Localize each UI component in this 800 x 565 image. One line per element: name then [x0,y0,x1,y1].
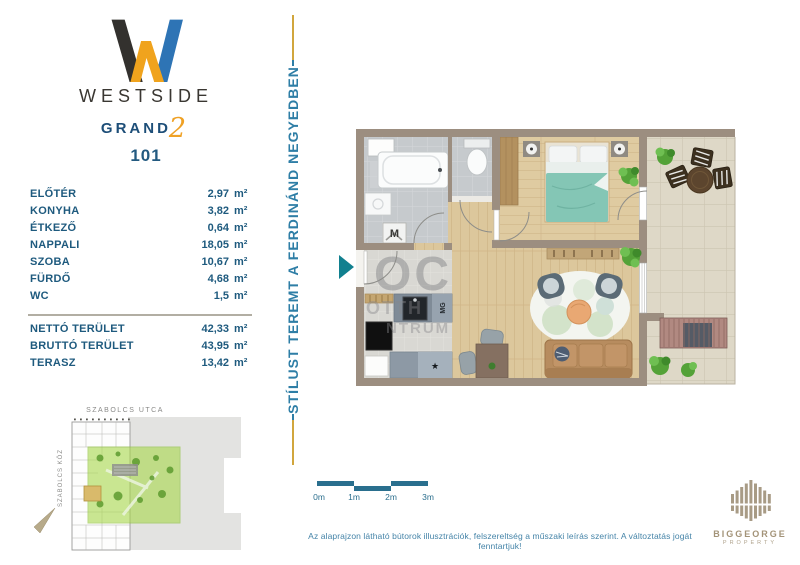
developer-subtitle: PROPERTY [698,540,800,546]
room-label: TERASZ [30,357,195,369]
brand-logo: WESTSIDE GRAND2 101 [30,18,262,166]
double-bed [545,142,609,222]
totals-rows: NETTÓ TERÜLET42,33m²BRUTTÓ TERÜLET43,95m… [30,323,254,374]
terrace-stool-right [712,167,732,190]
sitemap-courtyard [88,447,180,523]
brand-line2: GRAND2 [30,109,262,140]
floor-plan: M [336,116,736,388]
room-value: 1,5 [195,290,229,302]
room-rows: ELŐTÉR2,97m²KONYHA3,82m²ÉTKEZŐ0,64m²NAPP… [30,188,254,307]
brand-grand-label: GRAND [101,120,171,137]
westside-w-logo-icon [104,18,188,82]
room-unit: m² [234,222,254,234]
room-row: NAPPALI18,05m² [30,239,254,256]
room-row: BRUTTÓ TERÜLET43,95m² [30,340,254,357]
room-unit: m² [234,357,254,369]
fridge-star-label: ★ [431,361,439,371]
site-map-drawing: SZABOLCS UTCA SZABOLCS KÖZ [28,400,248,558]
living-window [640,263,647,313]
scale-tick-0: 0m [313,492,325,502]
terrace-bench [660,318,727,348]
compass-needle-icon [34,508,55,533]
room-unit: m² [234,273,254,285]
room-row: ELŐTÉR2,97m² [30,188,254,205]
developer-logo: BIGGEORGE PROPERTY [698,480,800,546]
dining-chair-left [458,351,478,375]
tv-console [547,248,619,259]
watermark-line1: OC [374,248,452,301]
kitchen-counter-bottom: ★ [390,352,452,378]
room-row: WC1,5m² [30,290,254,307]
terrace-stool-top [691,147,714,167]
unit-number: 101 [30,146,262,166]
scale-tick-3: 3m [422,492,434,502]
room-value: 2,97 [195,188,229,200]
room-unit: m² [234,239,254,251]
watermark-line3: NTRUM [386,320,450,337]
dishwasher-label: MG [440,302,447,314]
disclaimer-text: Az alaprajzon látható bútorok illusztrác… [290,531,710,551]
tagline-banner: STÍLUST TEREMT A FERDINÁND NEGYEDBEN [283,15,303,465]
washing-machine-label: M [390,228,399,240]
bathtub [378,152,448,188]
tagline-dash-end [292,60,294,66]
scale-bar: 0m 1m 2m 3m [306,477,446,505]
room-label: NETTÓ TERÜLET [30,323,195,335]
scale-bar-drawing: 0m 1m 2m 3m [306,477,446,505]
sitemap-unit-highlight [84,486,101,501]
gold-line-top [292,15,294,60]
totals-divider [28,314,252,316]
room-unit: m² [234,205,254,217]
room-label: KONYHA [30,205,195,217]
room-label: NAPPALI [30,239,195,251]
tagline-dash-start [292,414,294,420]
room-value: 13,42 [195,357,229,369]
room-row: NETTÓ TERÜLET42,33m² [30,323,254,340]
room-unit: m² [234,256,254,268]
terrace-table [687,167,713,193]
room-value: 18,05 [195,239,229,251]
room-value: 10,67 [195,256,229,268]
room-value: 0,64 [195,222,229,234]
tagline-text: STÍLUST TEREMT A FERDINÁND NEGYEDBEN [285,66,301,414]
room-value: 4,68 [195,273,229,285]
nightstand-right [611,141,628,157]
entrance-arrow-icon [339,255,354,279]
room-label: WC [30,290,195,302]
page: WESTSIDE GRAND2 101 ELŐTÉR2,97m²KONYHA3,… [0,0,800,565]
washbasin [365,193,391,215]
brand-two: 2 [169,113,189,144]
room-label: FÜRDŐ [30,273,195,285]
developer-logo-icon [727,480,773,522]
room-row: KONYHA3,82m² [30,205,254,222]
site-map: SZABOLCS UTCA SZABOLCS KÖZ [28,400,248,558]
sofa [545,340,632,378]
room-value: 3,82 [195,205,229,217]
room-value: 43,95 [195,340,229,352]
room-row: ÉTKEZŐ0,64m² [30,222,254,239]
room-table: ELŐTÉR2,97m²KONYHA3,82m²ÉTKEZŐ0,64m²NAPP… [30,188,254,307]
scale-tick-2: 2m [385,492,397,502]
room-unit: m² [234,323,254,335]
room-row: FÜRDŐ4,68m² [30,273,254,290]
room-unit: m² [234,290,254,302]
developer-name: BIGGEORGE [698,529,800,539]
room-row: TERASZ13,42m² [30,357,254,374]
room-unit: m² [234,188,254,200]
room-label: ÉTKEZŐ [30,222,195,234]
floor-plan-drawing: M [336,116,736,388]
watermark-line2: OTTH [366,298,423,318]
room-row: SZOBA10,67m² [30,256,254,273]
dining-table [476,344,508,378]
street-label-left: SZABOLCS KÖZ [57,449,64,507]
street-label-top: SZABOLCS UTCA [86,407,164,414]
totals-table: NETTÓ TERÜLET42,33m²BRUTTÓ TERÜLET43,95m… [30,323,254,374]
room-label: SZOBA [30,256,195,268]
wardrobe [500,137,518,205]
brand-name: WESTSIDE [30,86,262,107]
gold-line-bottom [292,420,294,465]
coffee-table [567,300,591,324]
room-value: 42,33 [195,323,229,335]
room-label: BRUTTÓ TERÜLET [30,340,195,352]
room-unit: m² [234,340,254,352]
washing-machine: M [383,223,406,243]
room-label: ELŐTÉR [30,188,195,200]
nightstand-left [523,141,540,157]
fridge [365,356,388,376]
scale-tick-1: 1m [348,492,360,502]
